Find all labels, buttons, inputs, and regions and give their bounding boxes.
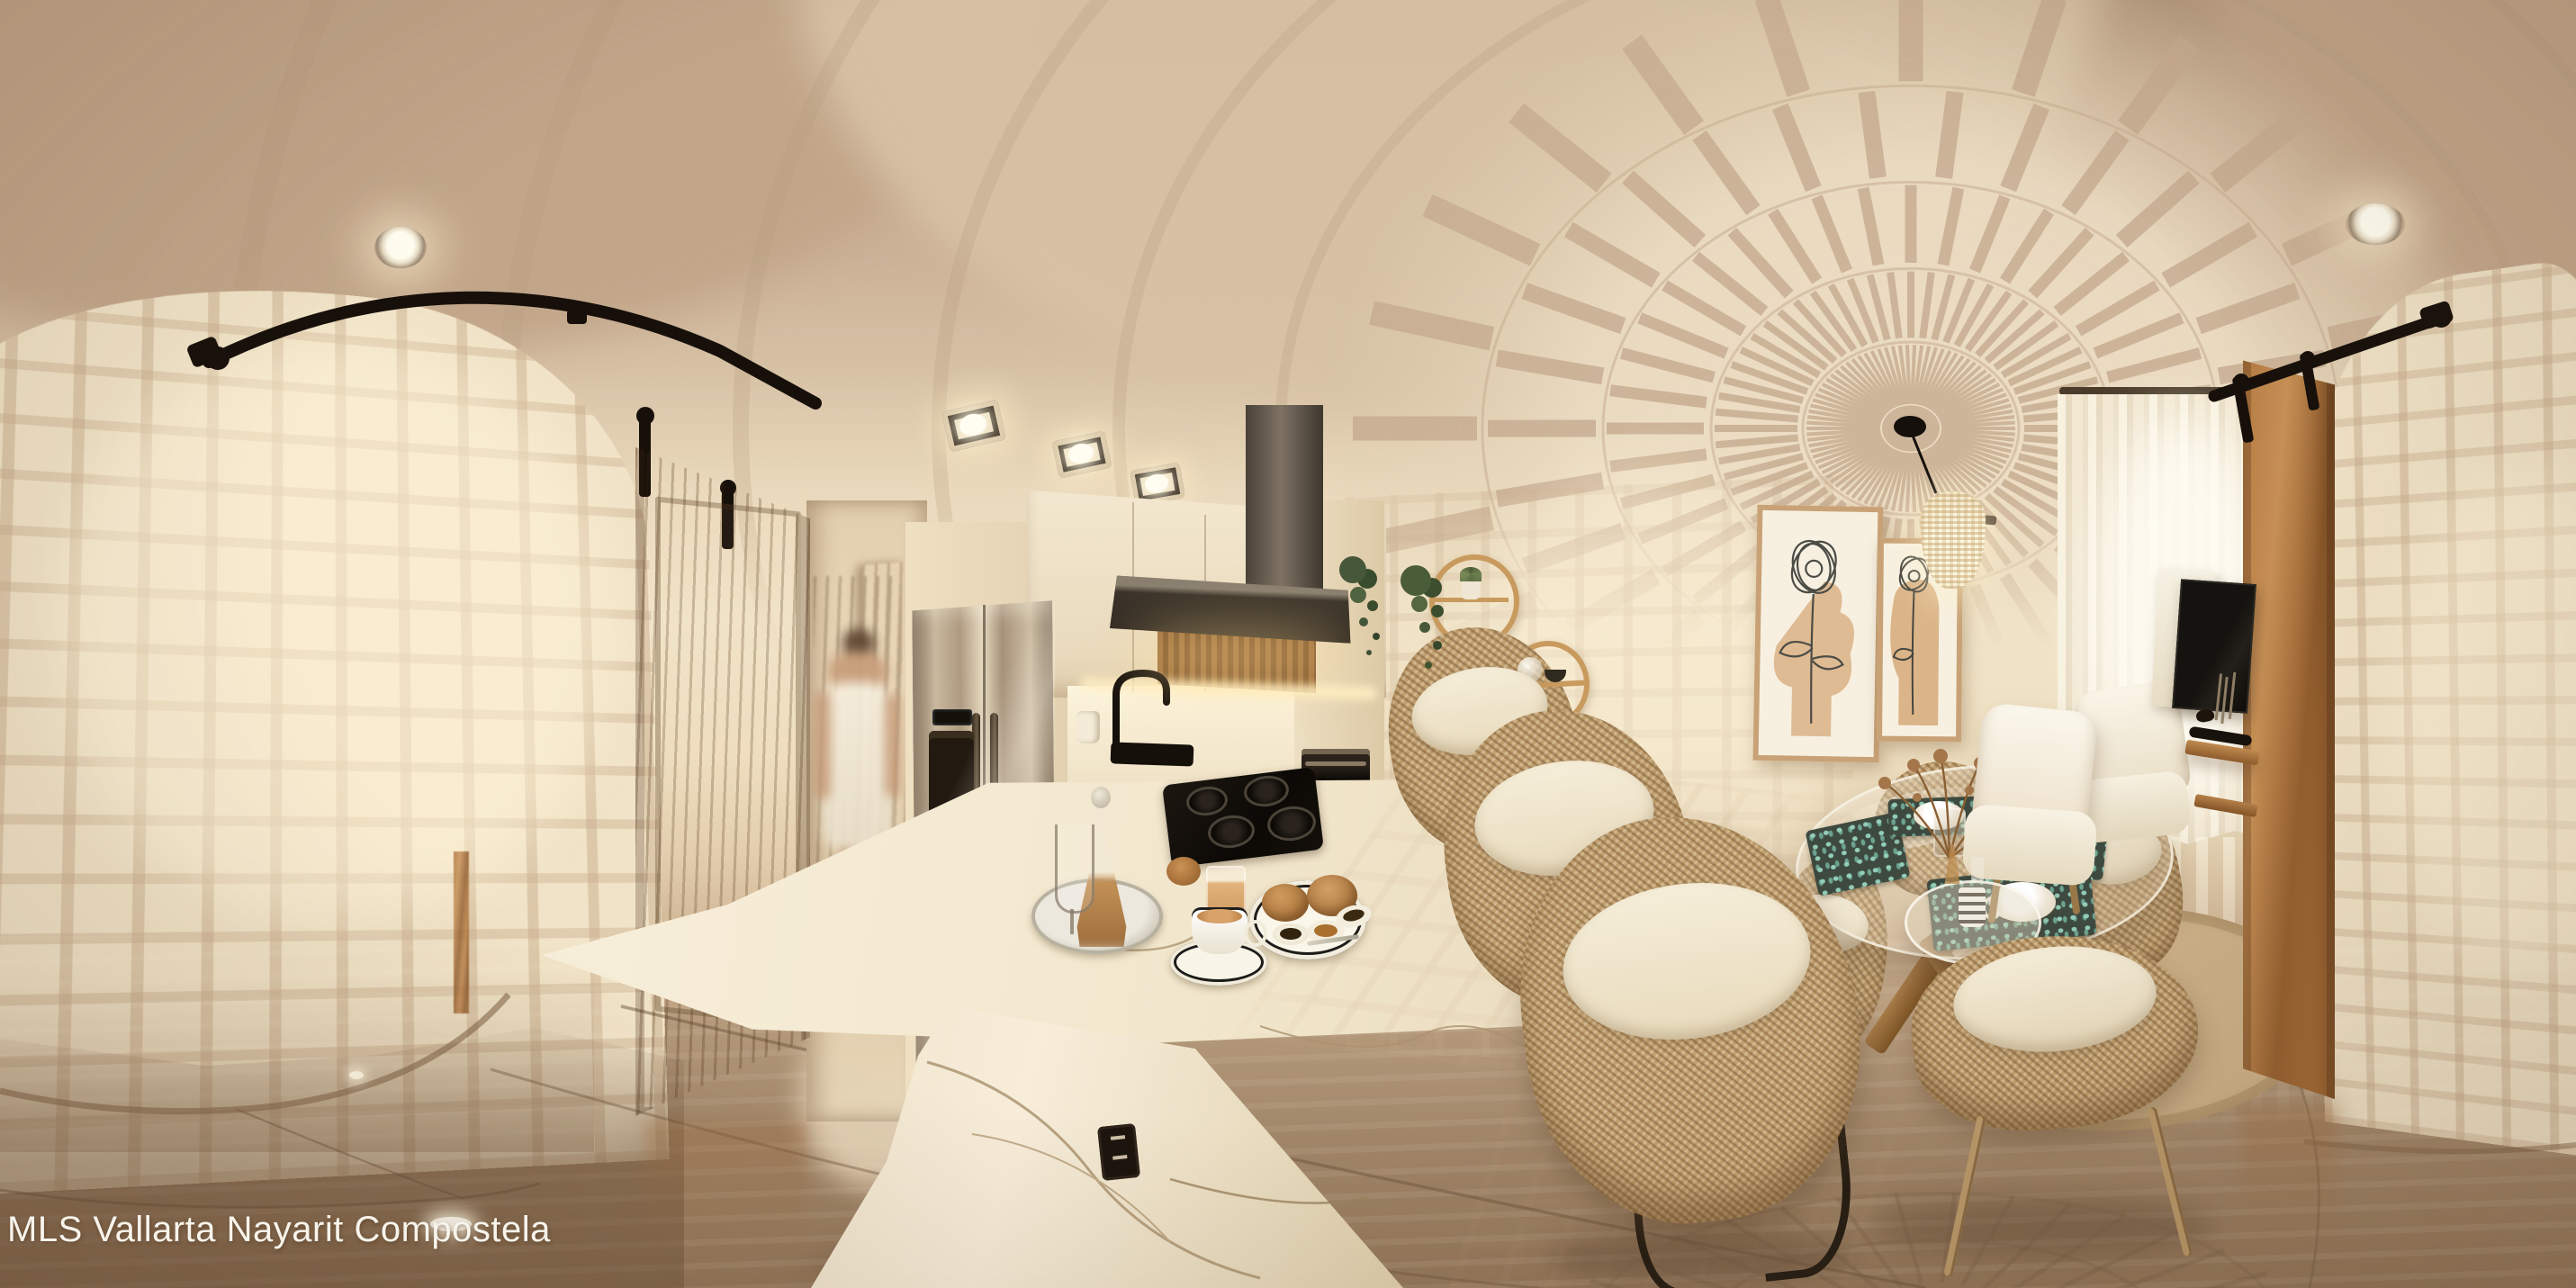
- line-art-1: [1759, 510, 1868, 746]
- left-door-floor-reflection: [644, 1121, 806, 1256]
- line-art-frame-1: [1753, 505, 1884, 762]
- island-outlet: [1097, 1123, 1140, 1181]
- hanger-wheel-1: [636, 407, 654, 425]
- hood-underglow: [1125, 628, 1350, 682]
- succulent-pot: [1462, 580, 1480, 599]
- floor-seam-left-2: [236, 1109, 464, 1199]
- oven-handle: [1305, 761, 1366, 766]
- black-faucet: [1116, 673, 1166, 749]
- right-baseboard: [2304, 1141, 2576, 1151]
- hanging-plant: [1401, 565, 1431, 596]
- floor-light-1: [349, 1071, 364, 1079]
- watermark-text: MLS Vallarta Nayarit Compostela: [7, 1210, 551, 1250]
- right-hanger-wheel-2: [2301, 351, 2315, 365]
- right-hanger-wheel-1: [2233, 374, 2249, 390]
- wine-glass-stem: [1070, 909, 1074, 934]
- wall-tv: [2172, 579, 2256, 714]
- condiment-amber-contents: [1314, 924, 1338, 937]
- right-door-floor-reflection: [2243, 1107, 2337, 1251]
- hood-chimney: [1246, 405, 1323, 596]
- woven-pendant-lamp: [1921, 491, 1986, 589]
- black-sink: [1111, 742, 1194, 766]
- right-rail-end-cap: [2418, 300, 2454, 329]
- decanter-stopper: [1091, 787, 1111, 808]
- wine-glass: [1055, 824, 1094, 914]
- succulent-leaves: [1460, 567, 1482, 581]
- utensil-crock: [1076, 711, 1100, 743]
- small-bun: [1166, 857, 1201, 886]
- bun-1: [1262, 884, 1309, 922]
- left-baseboard: [0, 995, 509, 1112]
- panorama-scene: MLS Vallarta Nayarit Compostela: [0, 0, 2576, 1288]
- coffee-table-glass-item: [1971, 857, 1984, 882]
- hood-side-plant: [1339, 556, 1366, 583]
- barn-door-rail-left: [209, 298, 815, 403]
- right-rail-svg: [2178, 270, 2556, 468]
- condiment-dark-contents: [1280, 928, 1302, 940]
- floor-seam-left: [0, 1184, 540, 1207]
- espresso-cup-handle: [1244, 920, 1267, 947]
- rail-mid-bracket: [567, 310, 587, 324]
- espresso-crema: [1197, 909, 1242, 923]
